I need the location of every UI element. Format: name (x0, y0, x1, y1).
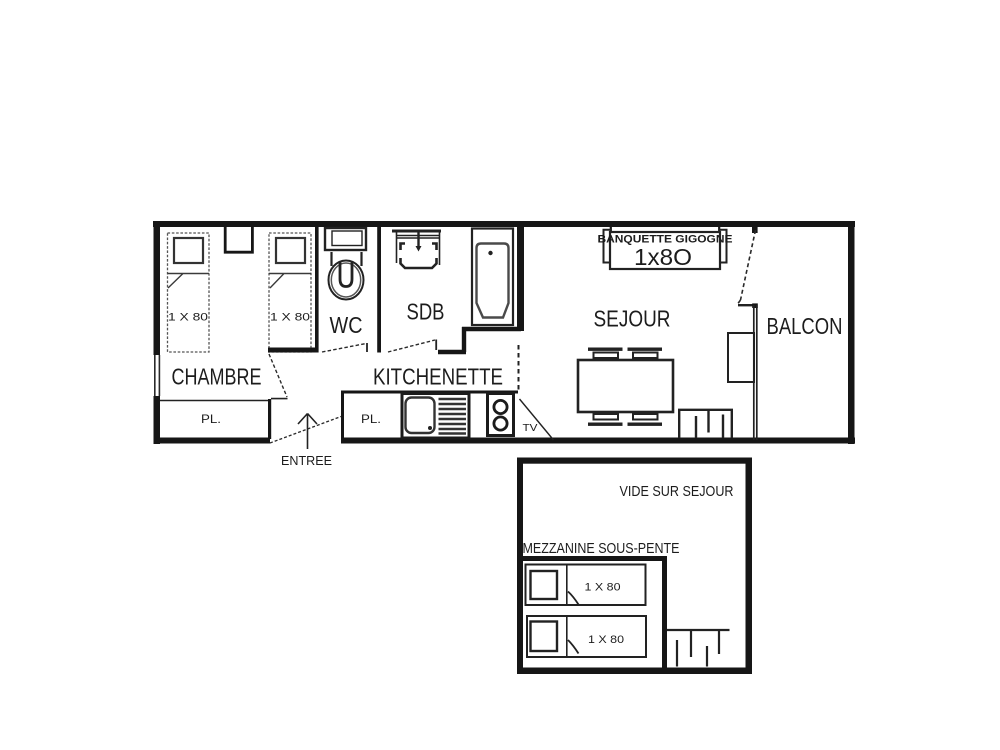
svg-text:SDB: SDB (407, 299, 445, 325)
svg-text:VIDE SUR SEJOUR: VIDE SUR SEJOUR (620, 483, 734, 500)
svg-text:1x8O: 1x8O (634, 244, 692, 270)
svg-text:1 X 80: 1 X 80 (588, 634, 624, 646)
svg-text:PL.: PL. (361, 414, 381, 426)
svg-text:KITCHENETTE: KITCHENETTE (373, 364, 503, 390)
svg-text:WC: WC (330, 312, 363, 338)
svg-text:1 X 80: 1 X 80 (168, 312, 208, 324)
svg-text:MEZZANINE SOUS-PENTE: MEZZANINE SOUS-PENTE (523, 540, 680, 557)
svg-text:SEJOUR: SEJOUR (594, 306, 671, 332)
svg-text:BALCON: BALCON (767, 313, 843, 339)
svg-text:TV: TV (523, 423, 538, 434)
svg-text:ENTREE: ENTREE (281, 454, 332, 468)
svg-text:1 X 80: 1 X 80 (270, 312, 310, 324)
svg-text:PL.: PL. (201, 414, 221, 426)
svg-text:CHAMBRE: CHAMBRE (172, 364, 262, 390)
svg-text:1 X 80: 1 X 80 (585, 582, 621, 594)
